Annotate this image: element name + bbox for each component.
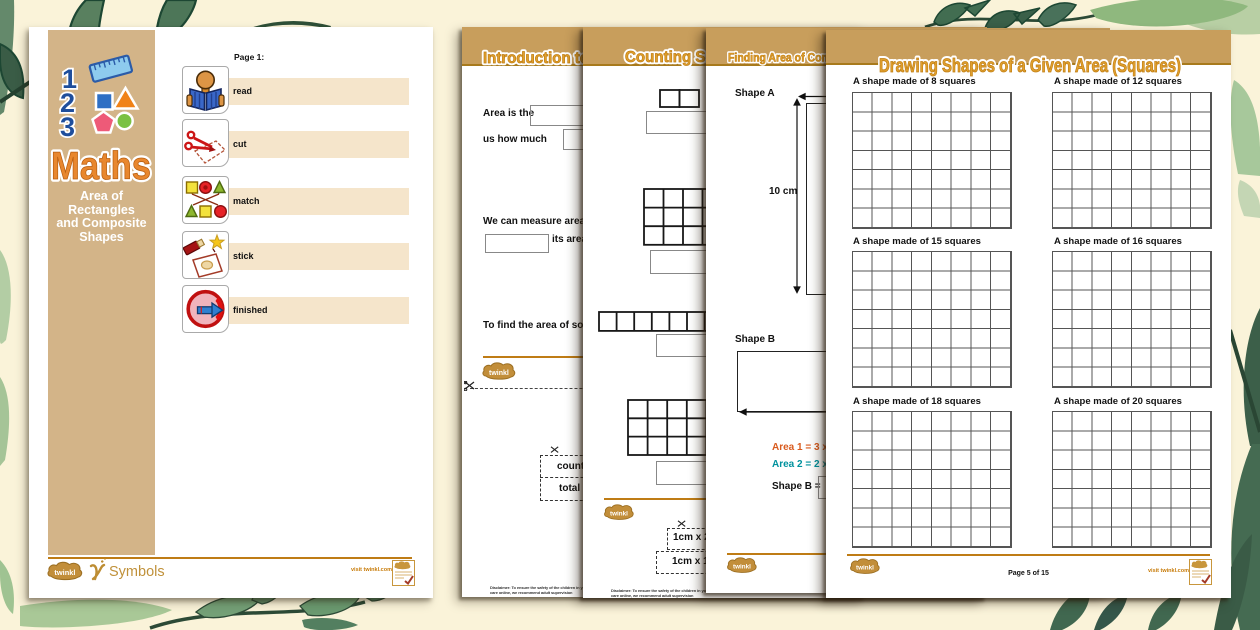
svg-text:3: 3: [60, 112, 75, 142]
svg-text:twinkl: twinkl: [610, 511, 628, 518]
svg-text:Drawing Shapes of a Given Area: Drawing Shapes of a Given Area (Squares): [879, 55, 1181, 77]
svg-text:Maths: Maths: [51, 145, 151, 188]
svg-text:twinkl: twinkl: [54, 568, 75, 577]
svg-text:twinkl: twinkl: [489, 370, 509, 377]
svg-text:twinkl: twinkl: [733, 564, 751, 571]
svg-text:twinkl: twinkl: [856, 565, 874, 572]
